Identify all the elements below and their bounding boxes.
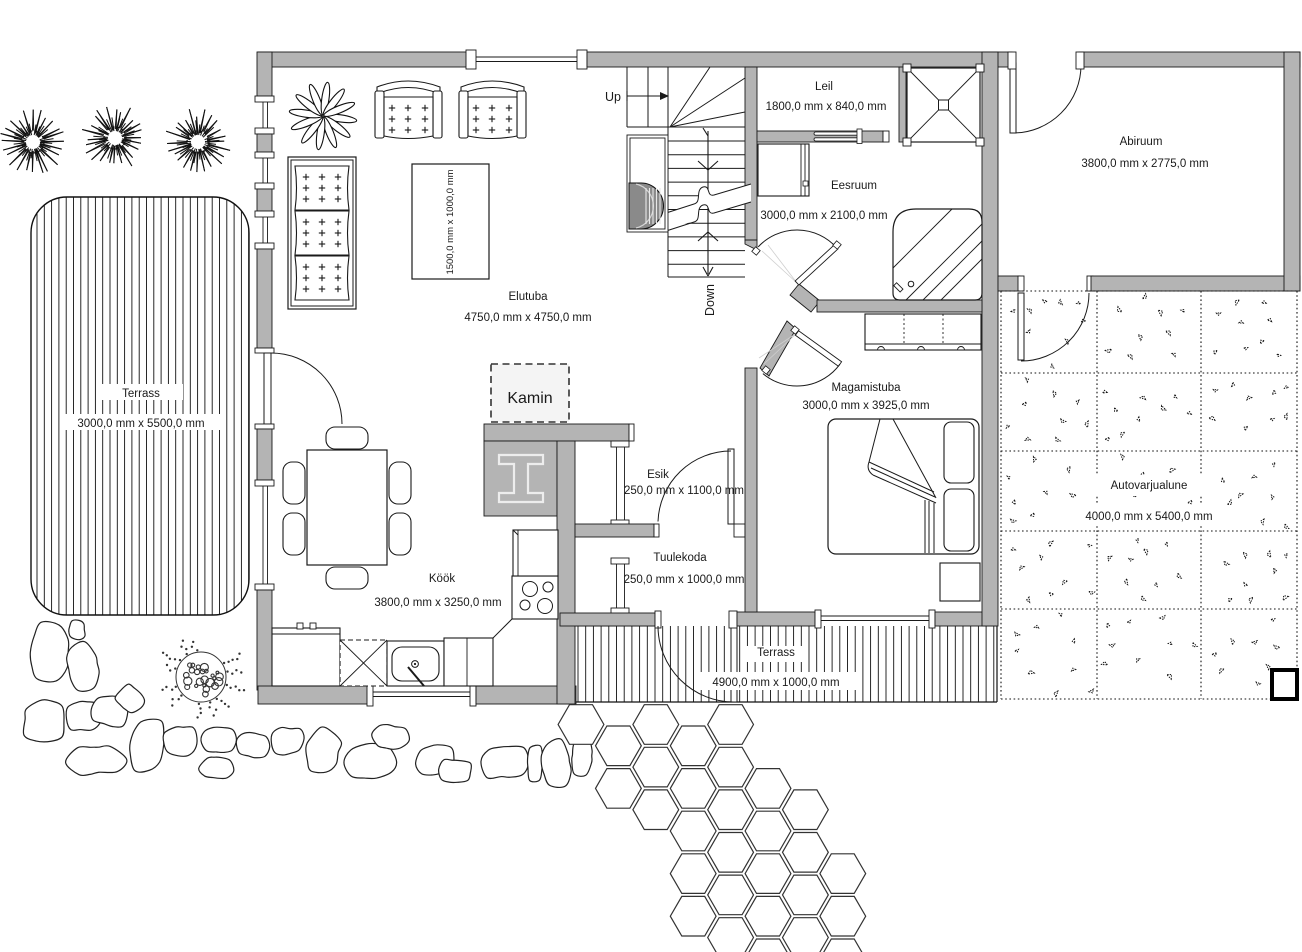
svg-text:Esik: Esik [647, 469, 669, 481]
svg-text:1800,0 mm x 840,0 mm: 1800,0 mm x 840,0 mm [766, 101, 887, 113]
svg-text:Elutuba: Elutuba [508, 291, 548, 303]
svg-text:Köök: Köök [429, 573, 455, 585]
svg-text:Up: Up [605, 90, 621, 104]
svg-text:1500,0 mm x 1000,0 mm: 1500,0 mm x 1000,0 mm [445, 169, 456, 274]
svg-text:Eesruum: Eesruum [831, 180, 877, 192]
svg-text:Abiruum: Abiruum [1120, 136, 1163, 148]
svg-text:3800,0 mm x 2775,0 mm: 3800,0 mm x 2775,0 mm [1081, 158, 1208, 170]
svg-text:Terrass: Terrass [757, 647, 795, 659]
svg-text:Autovarjualune: Autovarjualune [1111, 480, 1188, 492]
svg-text:3000,0 mm x 5500,0 mm: 3000,0 mm x 5500,0 mm [77, 418, 204, 430]
svg-text:Kamin: Kamin [507, 390, 552, 407]
svg-text:4750,0 mm x 4750,0 mm: 4750,0 mm x 4750,0 mm [464, 312, 591, 324]
svg-text:3800,0 mm x 3250,0 mm: 3800,0 mm x 3250,0 mm [374, 597, 501, 609]
svg-text:4900,0 mm x 1000,0 mm: 4900,0 mm x 1000,0 mm [712, 677, 839, 689]
svg-text:3000,0 mm x 3925,0 mm: 3000,0 mm x 3925,0 mm [802, 400, 929, 412]
svg-text:4000,0 mm x 5400,0 mm: 4000,0 mm x 5400,0 mm [1085, 511, 1212, 523]
svg-text:3000,0 mm x 2100,0 mm: 3000,0 mm x 2100,0 mm [760, 210, 887, 222]
svg-text:Down: Down [703, 284, 717, 316]
svg-text:Tuulekoda: Tuulekoda [653, 552, 707, 564]
svg-text:250,0 mm x 1000,0 mm: 250,0 mm x 1000,0 mm [624, 574, 745, 586]
svg-text:Leil: Leil [815, 81, 833, 93]
svg-text:Magamistuba: Magamistuba [831, 382, 901, 394]
svg-text:250,0 mm x 1100,0 mm: 250,0 mm x 1100,0 mm [624, 485, 744, 497]
svg-text:Terrass: Terrass [122, 388, 160, 400]
